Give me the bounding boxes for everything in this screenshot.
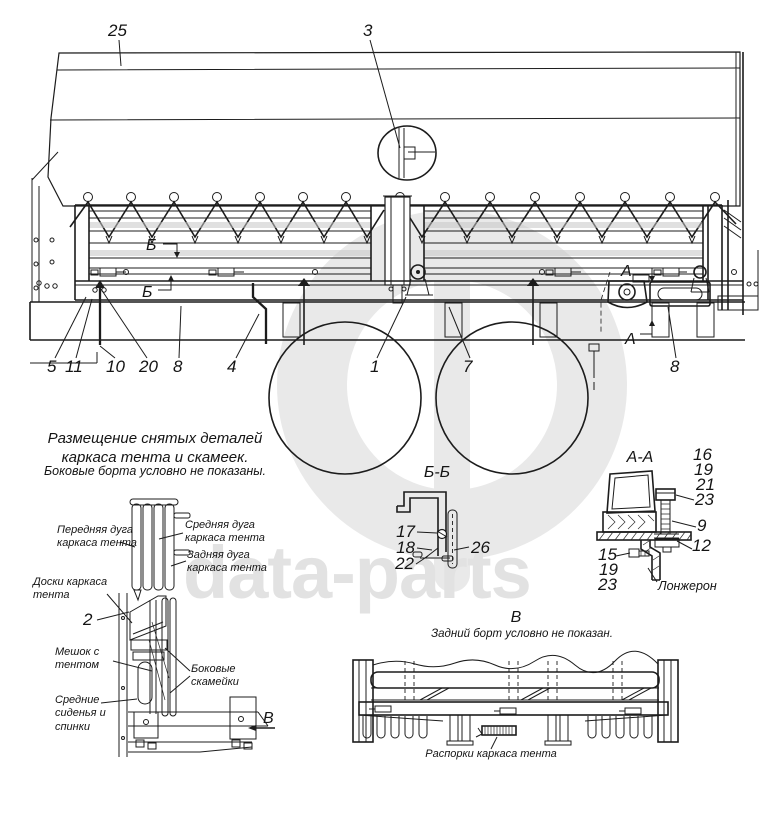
view-arrow-letter: В (263, 710, 274, 727)
spacer-strip (476, 726, 516, 737)
aa-bolt (654, 489, 679, 552)
callout-4: 4 (227, 357, 236, 376)
callout-2: 2 (82, 610, 93, 629)
label-front-arc: Передняя дуга каркаса тента (57, 524, 137, 551)
parts-diagram-page: data-parts (0, 0, 777, 827)
callout-26: 26 (470, 538, 490, 557)
section-aa: А-А 1 (597, 445, 717, 594)
view-v-arrow-mark: В (248, 710, 275, 731)
callout-23-top: 23 (694, 490, 714, 509)
callout-25: 25 (107, 21, 127, 40)
callout-22: 22 (394, 554, 414, 573)
callout-23-bottom: 23 (597, 575, 617, 594)
callout-8-left: 8 (173, 357, 183, 376)
view-v-drawing (353, 651, 678, 749)
main-view: 25 3 5 11 10 20 8 4 1 7 8 Б (30, 21, 758, 474)
callout-10: 10 (106, 357, 125, 376)
section-bb-title: Б-Б (424, 464, 450, 481)
arc-stack (130, 499, 190, 600)
aa-longeron-flange (641, 540, 660, 580)
storage-note-title: Размещение снятых деталей каркаса тента … (40, 430, 270, 468)
callout-7: 7 (463, 357, 473, 376)
callout-1: 1 (370, 357, 379, 376)
section-aa-title: А-А (626, 449, 654, 466)
tent-canopy (48, 52, 740, 206)
storage-note-subtitle: Боковые борта условно не показаны. (30, 464, 280, 478)
view-v-title: В (511, 609, 522, 626)
aa-stake-pocket (607, 471, 655, 513)
callout-20: 20 (138, 357, 158, 376)
section-mark-b-upper: Б (146, 237, 156, 254)
section-mark-a-lower: А (624, 331, 636, 348)
callout-9: 9 (697, 516, 707, 535)
label-side-benches: Боковые скамейки (191, 663, 253, 690)
callout-11: 11 (65, 357, 83, 376)
diagram-canvas: data-parts (0, 0, 777, 827)
label-bag: Мешок с тентом (55, 646, 103, 673)
label-middle-seats: Средние сиденья и спинки (55, 694, 111, 734)
platform-floor (128, 697, 268, 752)
label-boards: Доски каркаса тента (33, 576, 125, 603)
section-mark-a-upper: А (620, 263, 632, 280)
longeron-label: Лонжерон (657, 579, 717, 593)
callout-8-right: 8 (670, 357, 680, 376)
callout-12: 12 (692, 536, 711, 555)
callout-5: 5 (47, 357, 57, 376)
label-middle-arc: Средняя дуга каркаса тента (185, 519, 265, 546)
label-spacers: Распорки каркаса тента (421, 748, 561, 760)
view-v-subtitle: Задний борт условно не показан. (417, 628, 627, 640)
callout-3: 3 (363, 21, 373, 40)
section-mark-b-lower: Б (142, 284, 152, 301)
label-rear-arc: Задняя дуга каркаса тента (187, 549, 267, 576)
aa-floor-board (603, 512, 656, 532)
